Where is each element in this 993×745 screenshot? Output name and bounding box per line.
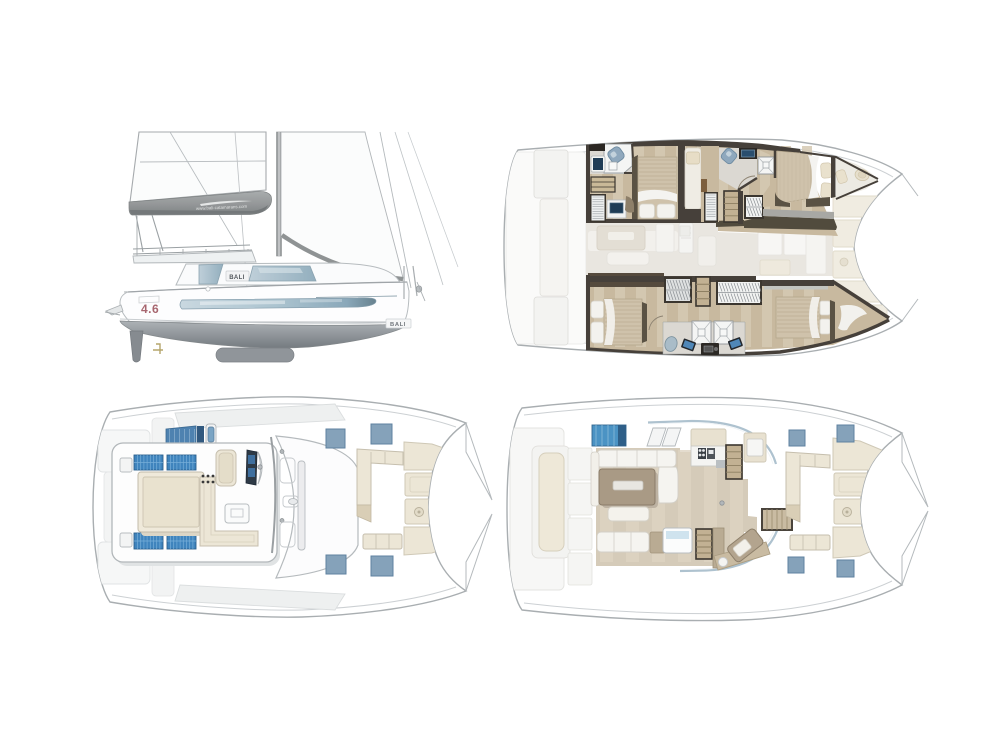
svg-text:4.6: 4.6 <box>141 302 159 316</box>
svg-text:BALI: BALI <box>390 322 406 328</box>
svg-text:BALI: BALI <box>229 275 245 281</box>
